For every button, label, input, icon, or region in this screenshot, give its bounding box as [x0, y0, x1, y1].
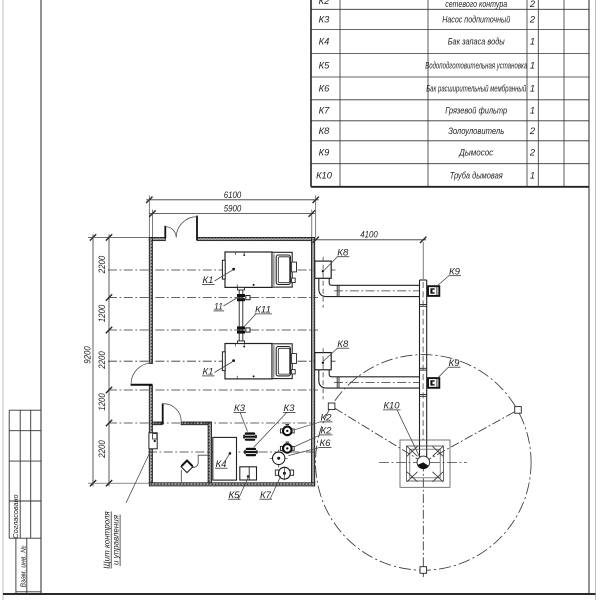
svg-text:11: 11	[214, 302, 223, 312]
svg-text:К5: К5	[319, 61, 330, 71]
svg-text:К2: К2	[319, 0, 330, 6]
svg-text:К10: К10	[384, 401, 400, 411]
svg-text:К1: К1	[203, 275, 214, 285]
svg-text:К9: К9	[319, 147, 330, 157]
svg-text:Щит контроля: Щит контроля	[103, 511, 112, 569]
svg-text:9200: 9200	[83, 346, 93, 364]
svg-text:2200: 2200	[97, 351, 107, 369]
svg-text:К11: К11	[255, 305, 271, 315]
svg-text:1: 1	[530, 37, 535, 47]
svg-text:Золоуловитель: Золоуловитель	[448, 126, 504, 136]
svg-text:сетевого контура: сетевого контура	[445, 0, 507, 9]
svg-text:2: 2	[529, 0, 536, 9]
svg-text:К3: К3	[284, 403, 295, 413]
svg-text:К2: К2	[321, 413, 332, 423]
svg-text:и управления: и управления	[111, 514, 120, 565]
svg-text:К4: К4	[319, 37, 330, 47]
svg-text:Бак расширительный мембранный: Бак расширительный мембранный	[426, 84, 526, 94]
svg-text:Дымосос: Дымосос	[458, 147, 493, 157]
svg-text:К3: К3	[319, 15, 330, 25]
svg-text:1: 1	[530, 170, 535, 180]
svg-text:Труба дымовая: Труба дымовая	[450, 170, 503, 180]
svg-text:К9: К9	[449, 358, 460, 368]
svg-text:Согласовано: Согласовано	[13, 494, 20, 538]
svg-text:2: 2	[529, 126, 536, 136]
svg-text:Насос подпиточный: Насос подпиточный	[442, 15, 510, 25]
svg-text:1: 1	[530, 61, 535, 71]
svg-text:К8: К8	[337, 247, 348, 257]
svg-text:К6: К6	[319, 84, 330, 94]
svg-text:К3: К3	[234, 403, 245, 413]
svg-text:Бак запаса воды: Бак запаса воды	[448, 37, 505, 47]
svg-text:К8: К8	[337, 339, 348, 349]
svg-text:К2: К2	[321, 426, 332, 436]
svg-text:2200: 2200	[97, 256, 107, 274]
svg-text:5900: 5900	[224, 204, 242, 214]
svg-text:1200: 1200	[97, 393, 107, 411]
svg-text:Водоподготовительная установка: Водоподготовительная установка	[425, 61, 527, 71]
svg-text:К7: К7	[319, 106, 330, 116]
svg-text:4100: 4100	[360, 230, 378, 240]
svg-text:2: 2	[529, 15, 536, 25]
svg-text:Грязевой фильтр: Грязевой фильтр	[445, 106, 507, 116]
svg-text:1: 1	[530, 106, 535, 116]
svg-text:К9: К9	[449, 266, 460, 276]
svg-text:К8: К8	[319, 126, 330, 136]
svg-text:К6: К6	[320, 438, 331, 448]
svg-text:К10: К10	[316, 170, 333, 180]
svg-text:К4: К4	[216, 459, 227, 469]
svg-text:2200: 2200	[97, 440, 107, 458]
svg-text:1: 1	[530, 84, 535, 94]
svg-text:1200: 1200	[97, 305, 107, 323]
svg-text:Взам. инв. №: Взам. инв. №	[20, 545, 27, 587]
svg-text:2: 2	[529, 147, 536, 157]
svg-text:К1: К1	[203, 367, 214, 377]
svg-text:6100: 6100	[224, 190, 242, 200]
